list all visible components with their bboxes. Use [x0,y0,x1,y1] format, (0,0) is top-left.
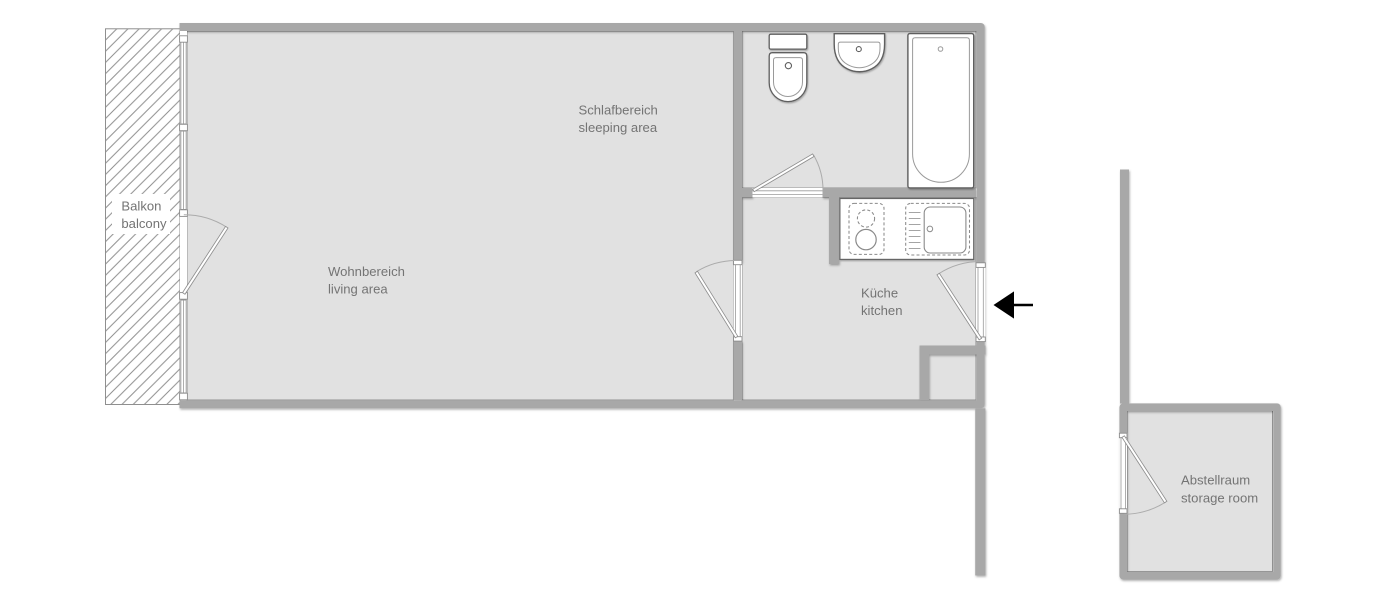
svg-text:sleeping area: sleeping area [579,120,658,135]
svg-text:Abstellraum: Abstellraum [1181,473,1250,488]
svg-text:living area: living area [328,282,388,297]
svg-text:Balkon: Balkon [121,198,161,213]
svg-text:storage room: storage room [1181,491,1258,506]
svg-text:Wohnbereich: Wohnbereich [328,264,405,279]
svg-text:balcony: balcony [121,216,167,231]
svg-text:kitchen: kitchen [861,303,903,318]
svg-text:Küche: Küche [861,286,898,301]
svg-text:Schlafbereich: Schlafbereich [579,102,658,117]
